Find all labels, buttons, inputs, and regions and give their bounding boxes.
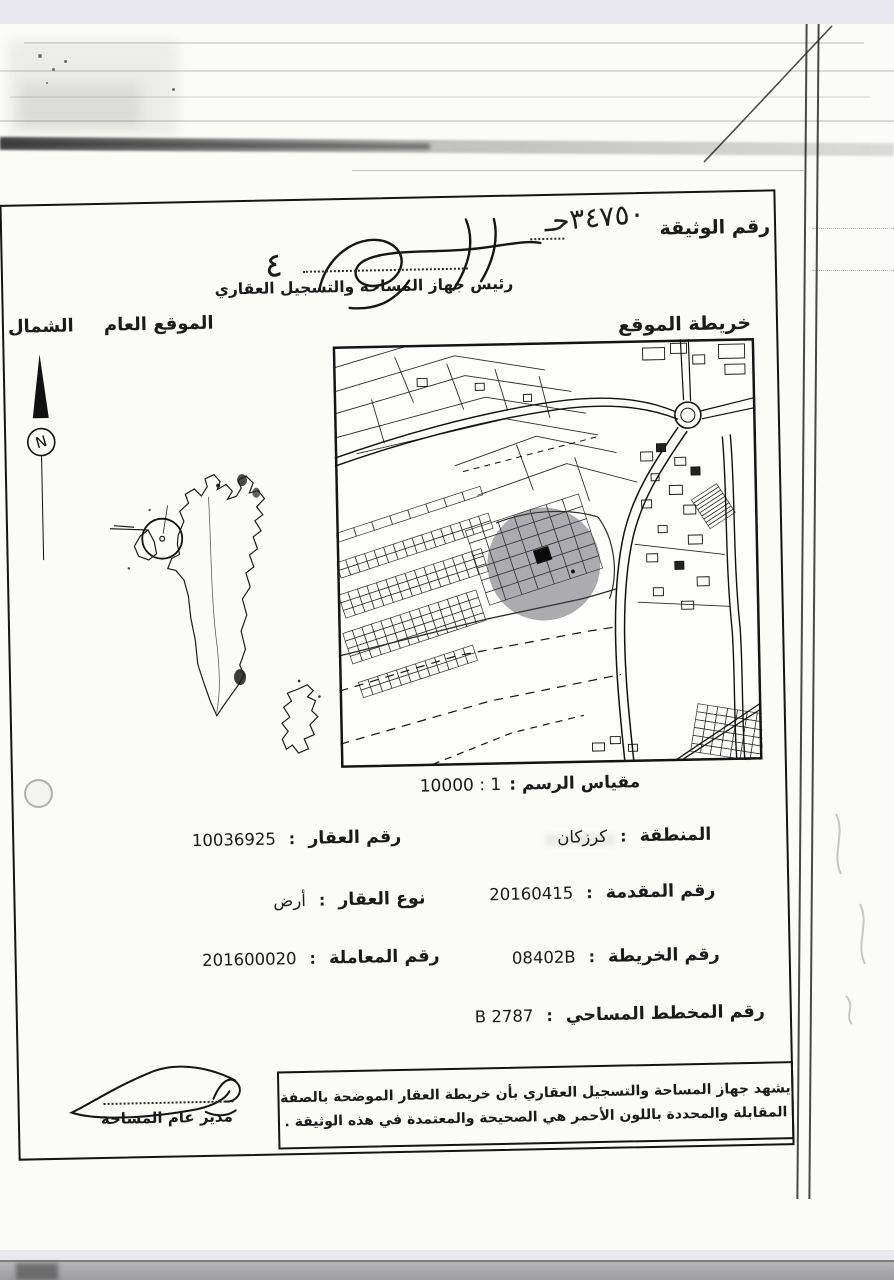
field-label: رقم الخريطة [608,945,720,967]
field-label: رقم المعاملة [329,946,440,968]
scale-value: 1 : 10000 [420,775,502,797]
site-map [332,338,762,768]
field-separator: : [588,947,595,966]
doc-number-label: رقم الوثيقة [659,215,770,239]
north-label: الشمال [8,315,74,337]
field-separator: : [620,826,627,845]
field-separator: : [309,949,316,968]
field-value: 08402B [512,947,576,967]
compass-letter: N [33,432,49,452]
director-title: مدير عام المساحة [94,1107,240,1128]
field-label: المنطقة [639,825,711,846]
field-separator: : [546,1006,553,1025]
field-separator: : [289,829,296,848]
field-separator: : [319,891,326,910]
field-value: 2787 B [475,1006,534,1026]
field-label: رقم المخطط المساحي [566,1002,766,1026]
field-label: نوع العقار [338,888,426,910]
general-location-map [88,437,325,782]
field-value: أرض [273,891,306,911]
location-circle-marker [142,518,183,559]
field-separator: : [586,883,593,902]
field-value: 20160415 [489,884,573,905]
field-map-number: رقم الخريطة : 08402B [512,945,720,969]
field-region: المنطقة : كرزكان [557,825,711,848]
chief-signature [290,212,562,317]
scale-label: مقياس الرسم : [509,772,640,795]
next-page-edge [0,1260,894,1280]
paper-page: رقم الوثيقة ٣٤٧٥٠حـ ٤ رئيس جهاز المساحة … [0,24,894,1250]
field-property-type: نوع العقار : أرض [273,888,426,911]
scanned-document: رقم الوثيقة ٣٤٧٥٠حـ ٤ رئيس جهاز المساحة … [0,0,894,1280]
field-value: كرزكان [557,827,607,847]
north-arrow: N [19,348,63,569]
field-value: 201600020 [202,949,297,970]
field-label: رقم العقار [308,827,401,849]
field-label: رقم المقدمة [605,881,715,903]
field-value: 10036925 [192,829,276,850]
site-map-label: خريطة الموقع [618,312,751,337]
certification-box: يشهد جهاز المساحة والتسجيل العقاري بأن خ… [277,1061,794,1149]
document-content: رقم الوثيقة ٣٤٧٥٠حـ ٤ رئيس جهاز المساحة … [0,15,894,1259]
general-location-label: الموقع العام [104,313,214,336]
field-property-number: رقم العقار : 10036925 [192,827,402,851]
